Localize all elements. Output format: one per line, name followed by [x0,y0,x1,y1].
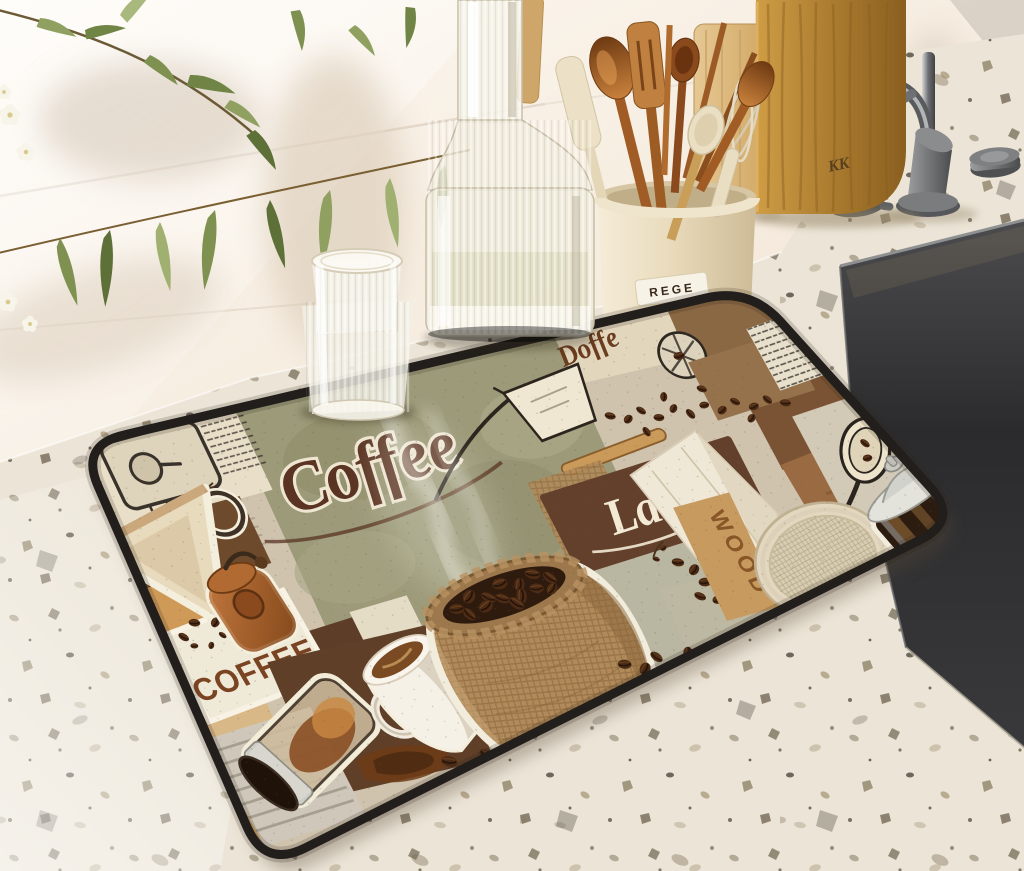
kitchen-scene: KK REGE [0,0,1024,871]
scene-canvas: KK REGE [0,0,1024,871]
ribbed-glasses [302,249,414,420]
cutting-board-large: KK [756,0,906,214]
